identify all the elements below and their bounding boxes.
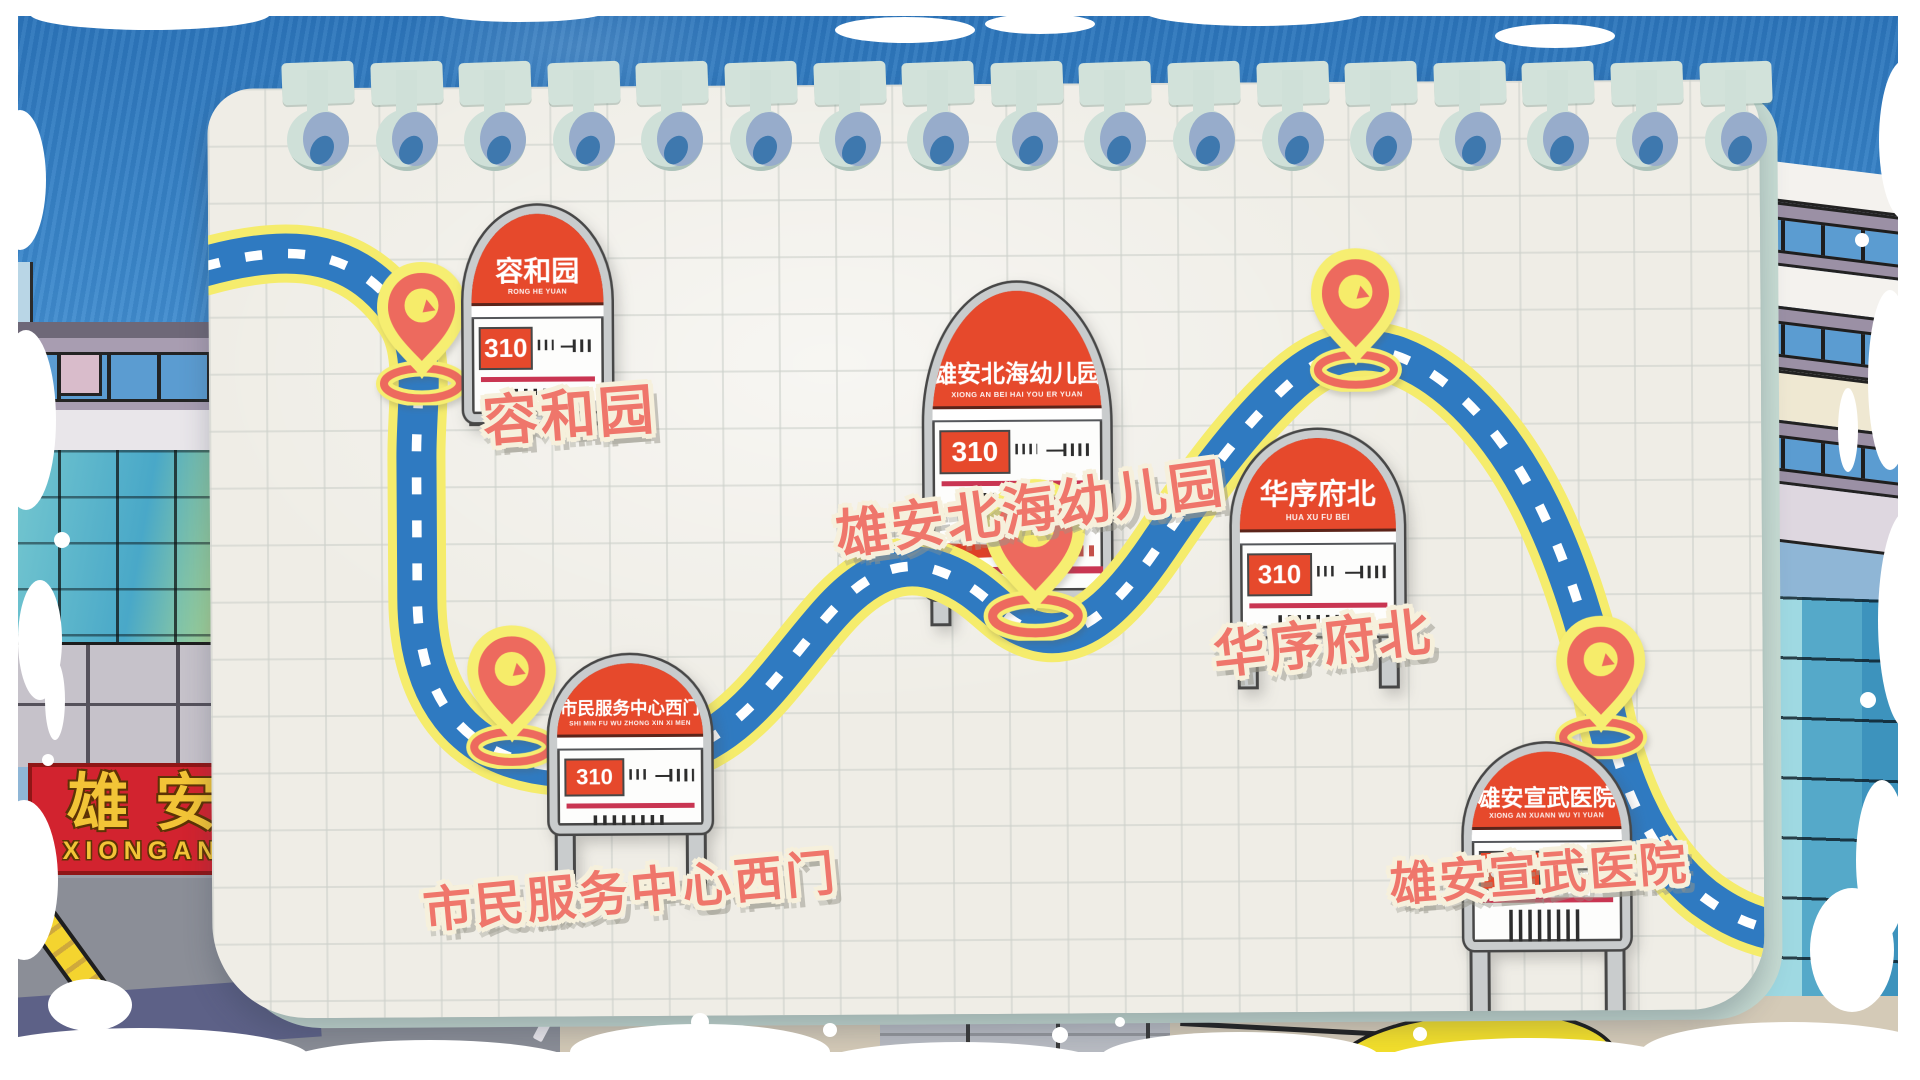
stop-sign-shiminfuwu: 市民服务中心西门 SHI MIN FU WU ZHONG XIN XI MEN … [549,655,712,834]
stop-pinyin: RONG HE YUAN [508,289,567,296]
stop-name: 容和园 [495,256,579,286]
binder-hole-icon [539,58,629,178]
binder-hole-icon [362,58,452,178]
binder-hole-icon [1513,58,1603,178]
timetable-bars [538,339,595,356]
stop-pinyin: XIONG AN XUANN WU YI YUAN [1489,812,1604,820]
binder-hole-icon [273,58,363,178]
landmark-en: XIONGAN [63,837,222,866]
timetable-bars [1317,566,1387,583]
route-number-badge: 310 [566,760,623,794]
bus-route-map: 雄安 XIONGAN 雄安北海幼儿园 XIONG AN BEI HAI YOU … [0,0,1920,1080]
binder-hole-icon [1159,58,1249,178]
stop-pinyin: SHI MIN FU WU ZHONG XIN XI MEN [569,720,691,728]
binder-hole-icon [1248,58,1338,178]
location-pin-icon [366,255,477,406]
stop-name: 市民服务中心西门 [560,698,700,717]
binder-hole-icon [1336,58,1426,178]
sign-header: 市民服务中心西门 SHI MIN FU WU ZHONG XIN XI MEN [557,663,703,738]
location-pin-icon [1545,609,1656,760]
binder-hole-icon [450,58,540,178]
timetable-bars [593,815,667,834]
binder-hole-icon [1602,58,1692,178]
binder-holes [0,0,1920,220]
timetable-bars [1509,909,1586,950]
binder-hole-icon [982,58,1072,178]
binder-hole-icon [716,58,806,178]
timetable-bars [630,768,695,785]
sign-header: 容和园 RONG HE YUAN [471,213,604,306]
route-number-badge: 310 [481,329,531,368]
stop-name: 华序府北 [1260,479,1376,510]
sign-header: 华序府北 HUA XU FU BEI [1239,437,1396,532]
stop-label-rongheyuan: 容和园 [479,364,659,457]
binder-hole-icon [805,58,895,178]
binder-hole-icon [893,58,983,178]
location-pin-icon [1300,241,1411,392]
route-map-paper: 雄安北海幼儿园 XIONG AN BEI HAI YOU ER YUAN 310 [207,79,1765,1018]
route-number-badge: 310 [1249,555,1310,594]
binder-hole-icon [1070,58,1160,178]
sign-header: 雄安宣武医院 XIONG AN XUANN WU YI YUAN [1471,751,1621,830]
binder-hole-icon [1691,58,1781,178]
stop-name: 雄安宣武医院 [1477,785,1615,810]
binder-hole-icon [1425,58,1515,178]
stop-pinyin: HUA XU FU BEI [1286,513,1350,522]
binder-hole-icon [627,58,717,178]
